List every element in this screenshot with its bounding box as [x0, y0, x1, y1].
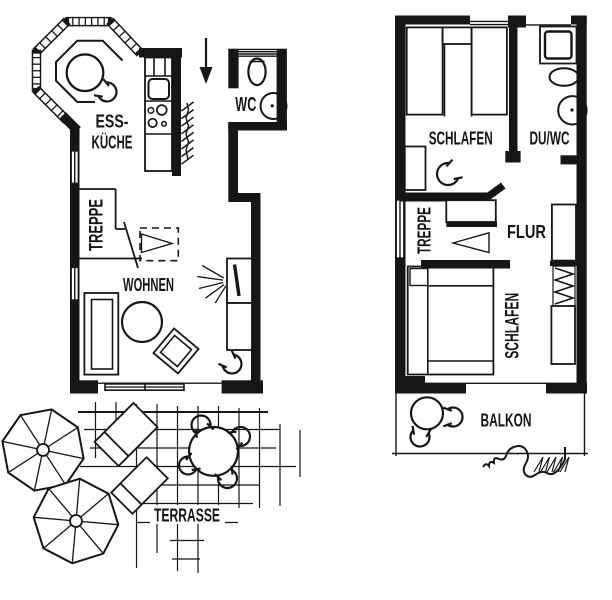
svg-text:SCHLAFEN: SCHLAFEN	[503, 293, 524, 359]
svg-text:ESS-: ESS-	[96, 111, 129, 131]
svg-text:DU/WC: DU/WC	[530, 129, 570, 149]
svg-text:FLUR: FLUR	[507, 222, 546, 242]
svg-text:WC: WC	[235, 94, 256, 116]
svg-text:SCHLAFEN: SCHLAFEN	[429, 129, 493, 149]
svg-text:TREPPE: TREPPE	[415, 207, 435, 254]
svg-text:TREPPE: TREPPE	[87, 199, 108, 251]
svg-text:WOHNEN: WOHNEN	[123, 275, 174, 295]
svg-text:KÜCHE: KÜCHE	[92, 133, 133, 153]
svg-text:BALKON: BALKON	[481, 411, 532, 431]
svg-text:TERRASSE: TERRASSE	[154, 506, 220, 526]
